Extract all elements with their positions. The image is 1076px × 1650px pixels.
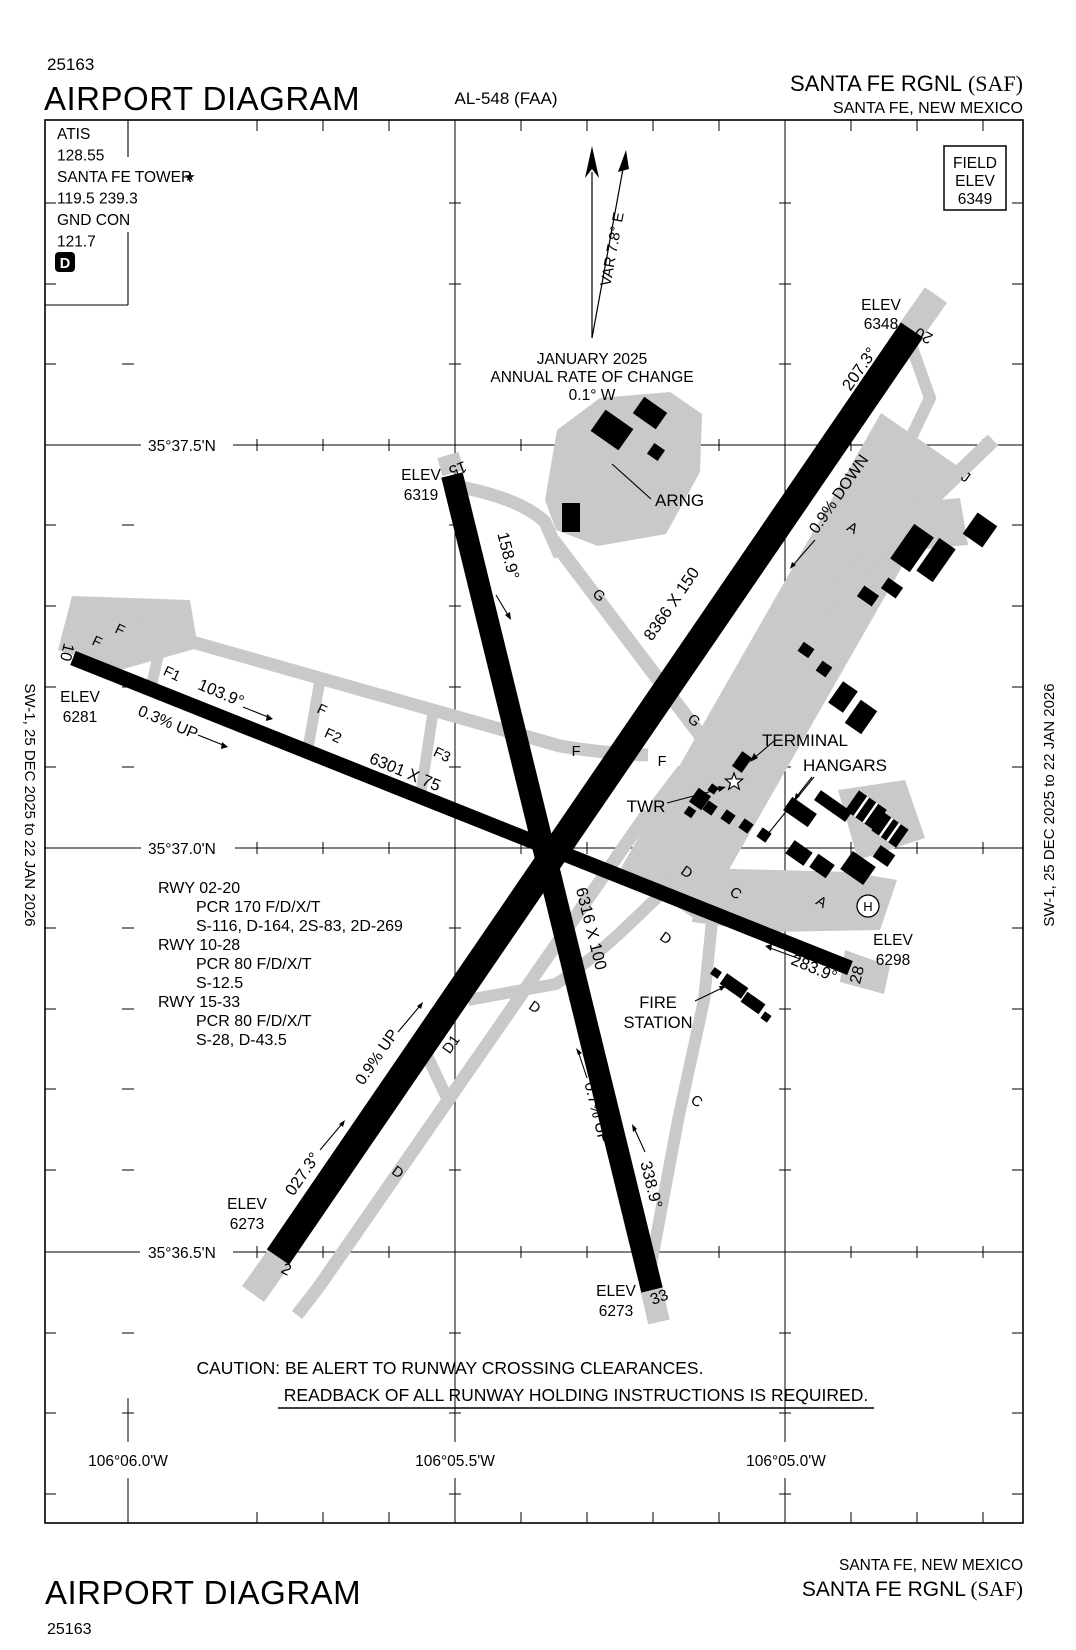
airport-diagram-page: 25163 AIRPORT DIAGRAM AL-548 (FAA) SANTA… <box>0 0 1076 1650</box>
slope-up-1028-arrow-line <box>198 735 223 745</box>
page-title: AIRPORT DIAGRAM <box>44 80 360 117</box>
rwy28-elev-value: 6298 <box>876 952 910 969</box>
hdg-338-arrow-line <box>635 1130 645 1152</box>
annual-rate-label: ANNUAL RATE OF CHANGE <box>490 369 693 386</box>
taxiway-f-label-4: F <box>572 744 581 760</box>
latitude-label-3: 35°36.5'N <box>148 1245 216 1262</box>
rwy20-elev-value: 6348 <box>864 316 898 333</box>
rwy15-heading: 158.9° <box>493 530 522 581</box>
hdg-103-arrow-line <box>243 707 268 717</box>
hdg-283-arrowhead-icon <box>765 944 772 951</box>
longitude-label-3: 106°05.0'W <box>746 1453 826 1470</box>
magnetic-variation-label: VAR 7.8° E <box>597 211 627 288</box>
rwy-info-name-3: RWY 15-33 <box>158 994 240 1011</box>
taxiway-d-label-2: D <box>656 929 674 948</box>
rwy15-elev-value: 6319 <box>404 487 438 504</box>
longitude-label-1: 106°06.0'W <box>88 1453 168 1470</box>
rwy-info-name-2: RWY 10-28 <box>158 937 240 954</box>
hdg-158-arrowhead-icon <box>505 612 511 620</box>
magnetic-north-arrowhead-icon <box>618 150 629 172</box>
rwy15-elev-label: ELEV <box>401 467 441 484</box>
ground-control-label: GND CON <box>57 212 130 229</box>
tower-star-icon: ★ <box>184 169 196 184</box>
helipad-label: H <box>863 899 872 914</box>
rwy-info-strength-3: S-28, D-43.5 <box>196 1032 287 1049</box>
rwy28-elev-label: ELEV <box>873 932 913 949</box>
atis-label: ATIS <box>57 126 90 143</box>
rwy-info-strength-2: S-12.5 <box>196 975 243 992</box>
slope-up-1533-arrowhead-icon <box>576 1048 582 1055</box>
taxiway-f2-label: F2 <box>322 726 344 748</box>
caution-line1: CAUTION: BE ALERT TO RUNWAY CROSSING CLE… <box>197 1358 704 1378</box>
margin-cycle-left: SW-1, 25 DEC 2025 to 22 JAN 2026 <box>21 683 38 926</box>
rwy-info-pcr-1: PCR 170 F/D/X/T <box>196 899 321 916</box>
footer-chart-code: 25163 <box>47 1621 92 1638</box>
fire-station-label-line1: FIRE <box>639 994 677 1012</box>
taxiway-d-label-3: D <box>525 998 543 1017</box>
hangars-label: HANGARS <box>803 756 887 775</box>
rwy-info-pcr-3: PCR 80 F/D/X/T <box>196 1013 312 1030</box>
procedure-id: AL-548 (FAA) <box>455 89 558 108</box>
tower-label: SANTA FE TOWER <box>57 169 192 186</box>
taxiway-c-label-2: C <box>687 1092 705 1111</box>
taxiway-f-label-5: F <box>658 754 667 770</box>
rwy-info-strength-1: S-116, D-164, 2S-83, 2D-269 <box>196 918 403 935</box>
latitude-label-1: 35°37.5'N <box>148 438 216 455</box>
longitude-label-2: 106°05.5'W <box>415 1453 495 1470</box>
airport-icao-top: (SAF) <box>968 71 1023 96</box>
hdg-103-arrowhead-icon <box>266 714 273 721</box>
rwy20-connector <box>908 342 930 444</box>
taxiway-f3-label: F3 <box>431 745 453 767</box>
footer-city: SANTA FE, NEW MEXICO <box>839 1557 1023 1574</box>
terminal-label: TERMINAL <box>762 731 848 750</box>
fire-station-label-line2: STATION <box>623 1014 692 1032</box>
airport-city-top: SANTA FE, NEW MEXICO <box>833 100 1023 117</box>
rwy33-elev-value: 6273 <box>599 1303 633 1320</box>
field-elev-line1: FIELD <box>953 155 997 172</box>
rwy-info-pcr-2: PCR 80 F/D/X/T <box>196 956 312 973</box>
hdg-338-arrowhead-icon <box>632 1124 637 1132</box>
rwy-info-name-1: RWY 02-20 <box>158 880 240 897</box>
rwy33-elev-label: ELEV <box>596 1283 636 1300</box>
rwy10-number: 10 <box>56 641 77 662</box>
fire-station-buildings <box>710 967 772 1022</box>
ground-frequency: 121.7 <box>57 234 96 251</box>
arng-label: ARNG <box>655 491 704 510</box>
clearance-delivery-symbol: D <box>60 256 70 272</box>
variation-month: JANUARY 2025 <box>537 351 648 368</box>
footer-airport-icao: (SAF) <box>970 1577 1023 1601</box>
caution-line2: READBACK OF ALL RUNWAY HOLDING INSTRUCTI… <box>284 1385 868 1405</box>
atis-frequency: 128.55 <box>57 148 104 165</box>
runway-info-block: RWY 02-20 PCR 170 F/D/X/T S-116, D-164, … <box>158 880 403 1049</box>
rwy20-elev-label: ELEV <box>861 297 901 314</box>
margin-cycle-right: SW-1, 25 DEC 2025 to 22 JAN 2026 <box>1041 683 1058 926</box>
rwy10-elev-value: 6281 <box>63 709 97 726</box>
rwy10-elev-label: ELEV <box>60 689 100 706</box>
field-elev-value: 6349 <box>958 191 992 208</box>
slope-up-1028-arrowhead-icon <box>221 742 228 749</box>
rwy02-elev-value: 6273 <box>230 1216 264 1233</box>
latitude-label-2: 35°37.0'N <box>148 841 216 858</box>
hdg-158-arrow-line <box>496 595 508 615</box>
footer-title: AIRPORT DIAGRAM <box>45 1574 361 1611</box>
slope-up-0220-arrow-line <box>398 1007 419 1032</box>
comm-box: ATIS 128.55 SANTA FE TOWER ★ 119.5 239.3… <box>55 126 196 272</box>
field-elev-line2: ELEV <box>955 173 995 190</box>
fire-arrowhead-icon <box>719 986 726 991</box>
chart-code-top: 25163 <box>47 55 94 74</box>
tower-frequencies: 119.5 239.3 <box>57 191 138 208</box>
rwy02-elev-label: ELEV <box>227 1196 267 1213</box>
airport-name-top: SANTA FE RGNL <box>790 71 962 96</box>
annual-rate-value: 0.1° W <box>569 387 616 404</box>
footer-airport-name: SANTA FE RGNL <box>802 1578 966 1601</box>
tower-feature-label: TWR <box>627 797 666 816</box>
taxiway-f1-label: F1 <box>161 664 183 686</box>
airport-diagram-canvas: 25163 AIRPORT DIAGRAM AL-548 (FAA) SANTA… <box>0 0 1076 1650</box>
